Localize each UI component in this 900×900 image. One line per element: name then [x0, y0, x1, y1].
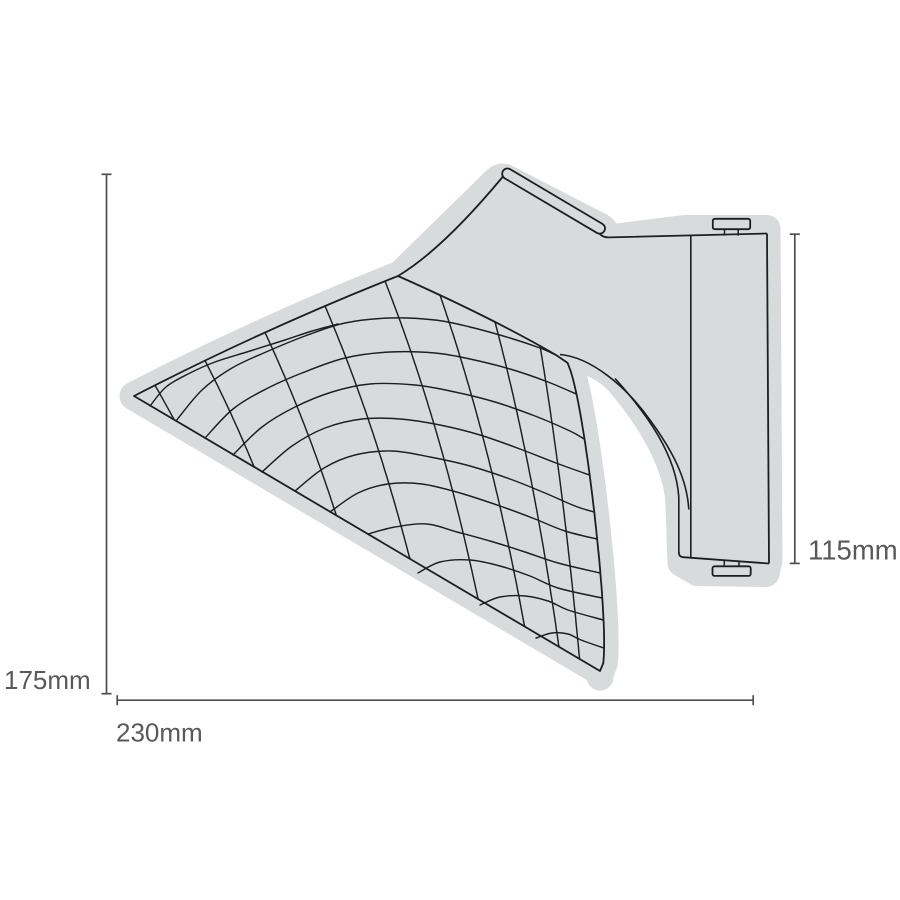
- svg-text:230mm: 230mm: [116, 718, 203, 748]
- svg-text:115mm: 115mm: [808, 535, 898, 566]
- svg-text:175mm: 175mm: [4, 665, 91, 695]
